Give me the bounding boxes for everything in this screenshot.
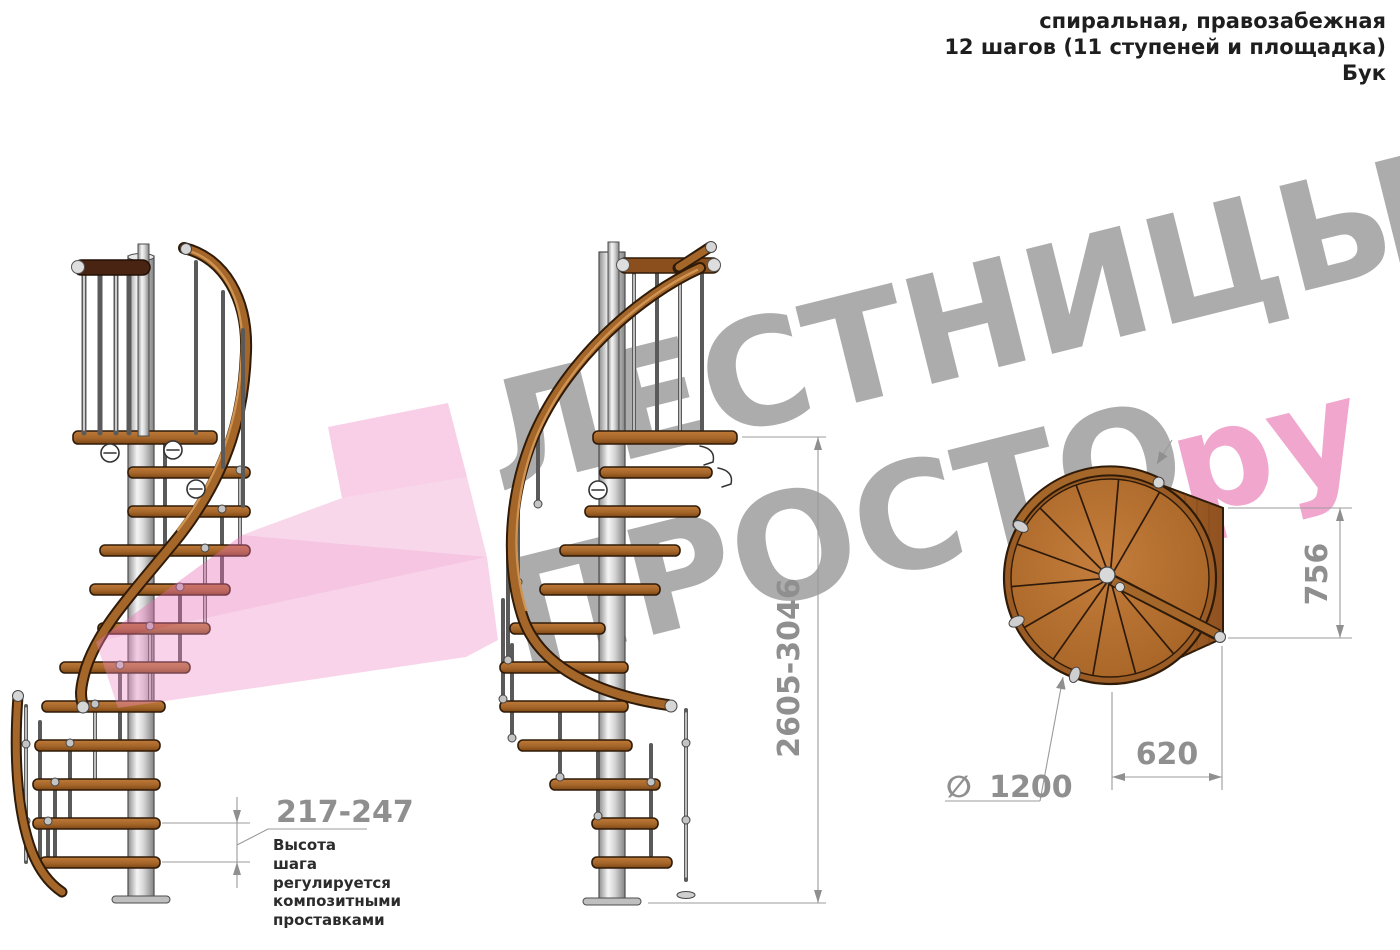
title-type: спиральная, правозабежная — [944, 8, 1386, 34]
stair-disc — [1011, 479, 1209, 677]
connector-knobs — [499, 500, 690, 824]
watermark-brand-bottom: ПРОСТО — [487, 367, 1202, 702]
pole-top — [1099, 567, 1115, 583]
stair-disc-rim — [1004, 472, 1216, 684]
balusters — [26, 433, 240, 862]
watermark-brand-top: ЛЕСТНИЦЫ — [465, 124, 1400, 526]
technical-drawing: 2605-3046 217-247 756 620 ∅ 1200 — [0, 0, 1400, 950]
plan-view — [1004, 471, 1226, 684]
title-material: Бук — [944, 60, 1386, 86]
left-elevation-view — [13, 244, 251, 904]
drawing-sheet: ЛЕСТНИЦЫ ПРОСТО ру — [0, 0, 1400, 950]
baluster-highlights — [634, 275, 686, 877]
spiral-handrail — [512, 268, 700, 712]
center-pole — [599, 252, 625, 900]
top-handrail-bar — [618, 258, 720, 273]
dim-plan-width: 620 — [1136, 737, 1199, 772]
top-handrail-bar — [74, 260, 150, 275]
tread-edges — [1011, 479, 1173, 675]
balusters — [503, 272, 702, 880]
watermark-suffix-text: ру — [1154, 346, 1379, 550]
dimension-lines — [162, 437, 1352, 903]
diameter-symbol: ∅ — [946, 770, 972, 805]
watermark-layer: ЛЕСТНИЦЫ ПРОСТО ру — [0, 0, 1400, 950]
plan-handrail-arc — [1013, 471, 1164, 529]
plan-handrail-diagonal — [1112, 580, 1226, 643]
connector-knobs — [22, 466, 244, 825]
center-pole — [128, 256, 154, 898]
diameter-value: 1200 — [989, 770, 1073, 805]
mounting-rosettes — [589, 481, 607, 499]
top-railing — [72, 244, 151, 436]
rim-baluster-caps — [1007, 518, 1082, 684]
step-height-note: Высота шага регулируется композитными пр… — [273, 836, 385, 930]
dim-diameter: ∅ 1200 — [946, 770, 1073, 805]
baluster-highlights — [26, 474, 240, 860]
lower-handrail — [13, 691, 63, 893]
title-block: спиральная, правозабежная 12 шагов (11 с… — [944, 8, 1386, 86]
dim-total-height: 2605-3046 — [772, 578, 807, 757]
title-steps: 12 шагов (11 ступеней и площадка) — [944, 34, 1386, 60]
landing-platform — [1137, 476, 1223, 662]
dim-step-height: 217-247 — [276, 795, 414, 830]
watermark-dot — [1141, 495, 1177, 531]
dim-plan-height: 756 — [1300, 543, 1335, 606]
support-brackets — [700, 446, 731, 487]
pink-arrow-watermark — [0, 0, 1400, 950]
watermark-brand-suffix: ру — [1116, 346, 1379, 560]
handrail-balusters — [196, 262, 243, 506]
spiral-handrail — [77, 244, 246, 714]
top-railing — [617, 242, 721, 274]
mounting-rosettes — [101, 441, 205, 498]
steps — [500, 431, 737, 868]
dimension-arrowheads — [233, 437, 1344, 903]
front-elevation-view — [499, 242, 737, 906]
steps — [33, 431, 250, 868]
